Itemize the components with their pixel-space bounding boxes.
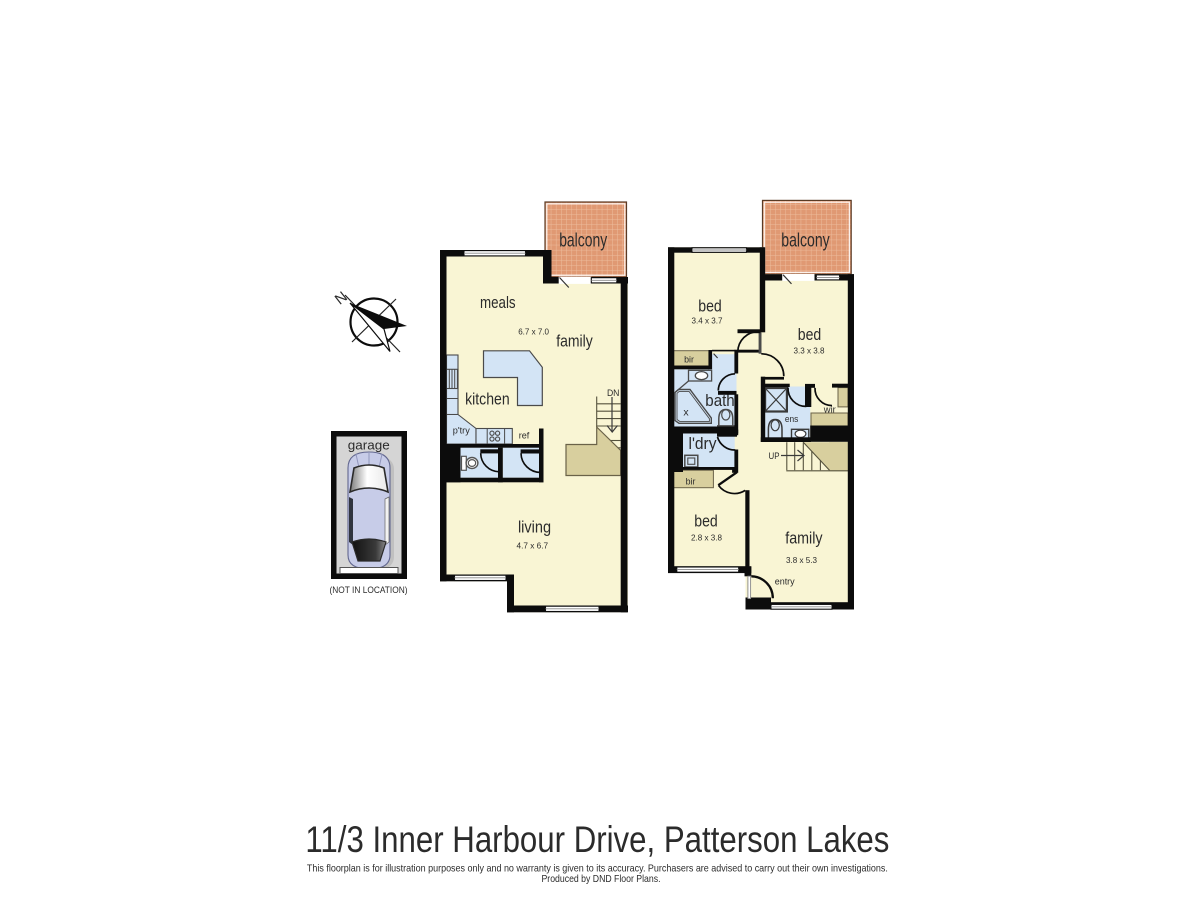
svg-text:bir: bir xyxy=(684,354,694,364)
svg-text:bed: bed xyxy=(798,326,822,344)
svg-text:balcony: balcony xyxy=(559,229,607,251)
svg-text:living: living xyxy=(518,519,551,537)
svg-text:bir: bir xyxy=(686,476,696,486)
svg-text:3.4 x 3.7: 3.4 x 3.7 xyxy=(692,315,723,325)
svg-text:meals: meals xyxy=(480,294,516,312)
svg-text:2.8 x 3.8: 2.8 x 3.8 xyxy=(691,533,722,543)
svg-text:l'dry: l'dry xyxy=(689,435,718,453)
svg-text:bed: bed xyxy=(698,298,722,316)
svg-text:x: x xyxy=(683,407,689,419)
svg-text:(NOT IN LOCATION): (NOT IN LOCATION) xyxy=(330,585,408,595)
svg-text:bed: bed xyxy=(694,513,718,531)
svg-text:p'try: p'try xyxy=(453,425,470,435)
svg-text:entry: entry xyxy=(775,576,795,587)
svg-text:UP: UP xyxy=(769,451,780,462)
svg-text:ens: ens xyxy=(785,414,799,425)
svg-text:kitchen: kitchen xyxy=(465,391,510,409)
svg-text:4.7 x 6.7: 4.7 x 6.7 xyxy=(517,540,549,550)
svg-text:DN: DN xyxy=(607,388,620,398)
svg-text:3.3 x 3.8: 3.3 x 3.8 xyxy=(794,346,825,356)
svg-text:balcony: balcony xyxy=(781,229,830,251)
svg-text:family: family xyxy=(785,530,823,548)
svg-text:11/3 Inner Harbour Drive, Patt: 11/3 Inner Harbour Drive, Patterson Lake… xyxy=(305,819,889,860)
svg-text:Produced by DND Floor Plans.: Produced by DND Floor Plans. xyxy=(542,874,661,885)
svg-text:garage: garage xyxy=(348,439,390,453)
svg-text:family: family xyxy=(556,332,593,350)
svg-text:3.8 x 5.3: 3.8 x 5.3 xyxy=(786,555,817,565)
svg-text:ref: ref xyxy=(519,431,530,441)
svg-text:6.7 x 7.0: 6.7 x 7.0 xyxy=(518,327,549,337)
